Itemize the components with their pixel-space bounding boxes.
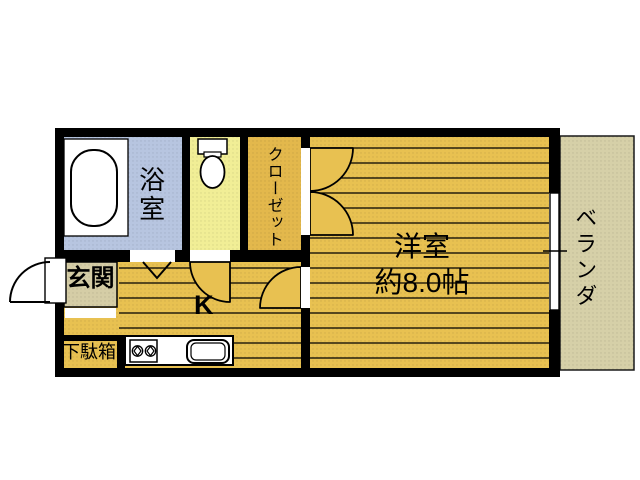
- bathroom-label: 浴室: [136, 166, 165, 224]
- bathtub-icon: [64, 139, 128, 236]
- closet-label: クローゼット: [264, 146, 282, 248]
- western-room-size: 約8.0帖: [302, 268, 542, 299]
- entrance-label: 玄関: [64, 266, 117, 292]
- veranda-label: ベランダ: [572, 206, 596, 310]
- western-room-name: 洋室: [302, 232, 542, 263]
- toilet-icon: [198, 139, 227, 188]
- entrance-door-swing-icon: [10, 258, 66, 303]
- western-room-label: 洋室 約8.0帖: [302, 232, 542, 299]
- sink-icon: [187, 340, 229, 363]
- shoe-cabinet-label: 下駄箱: [62, 343, 116, 363]
- kitchen-label: K: [194, 291, 214, 321]
- stove-icon: [130, 340, 157, 362]
